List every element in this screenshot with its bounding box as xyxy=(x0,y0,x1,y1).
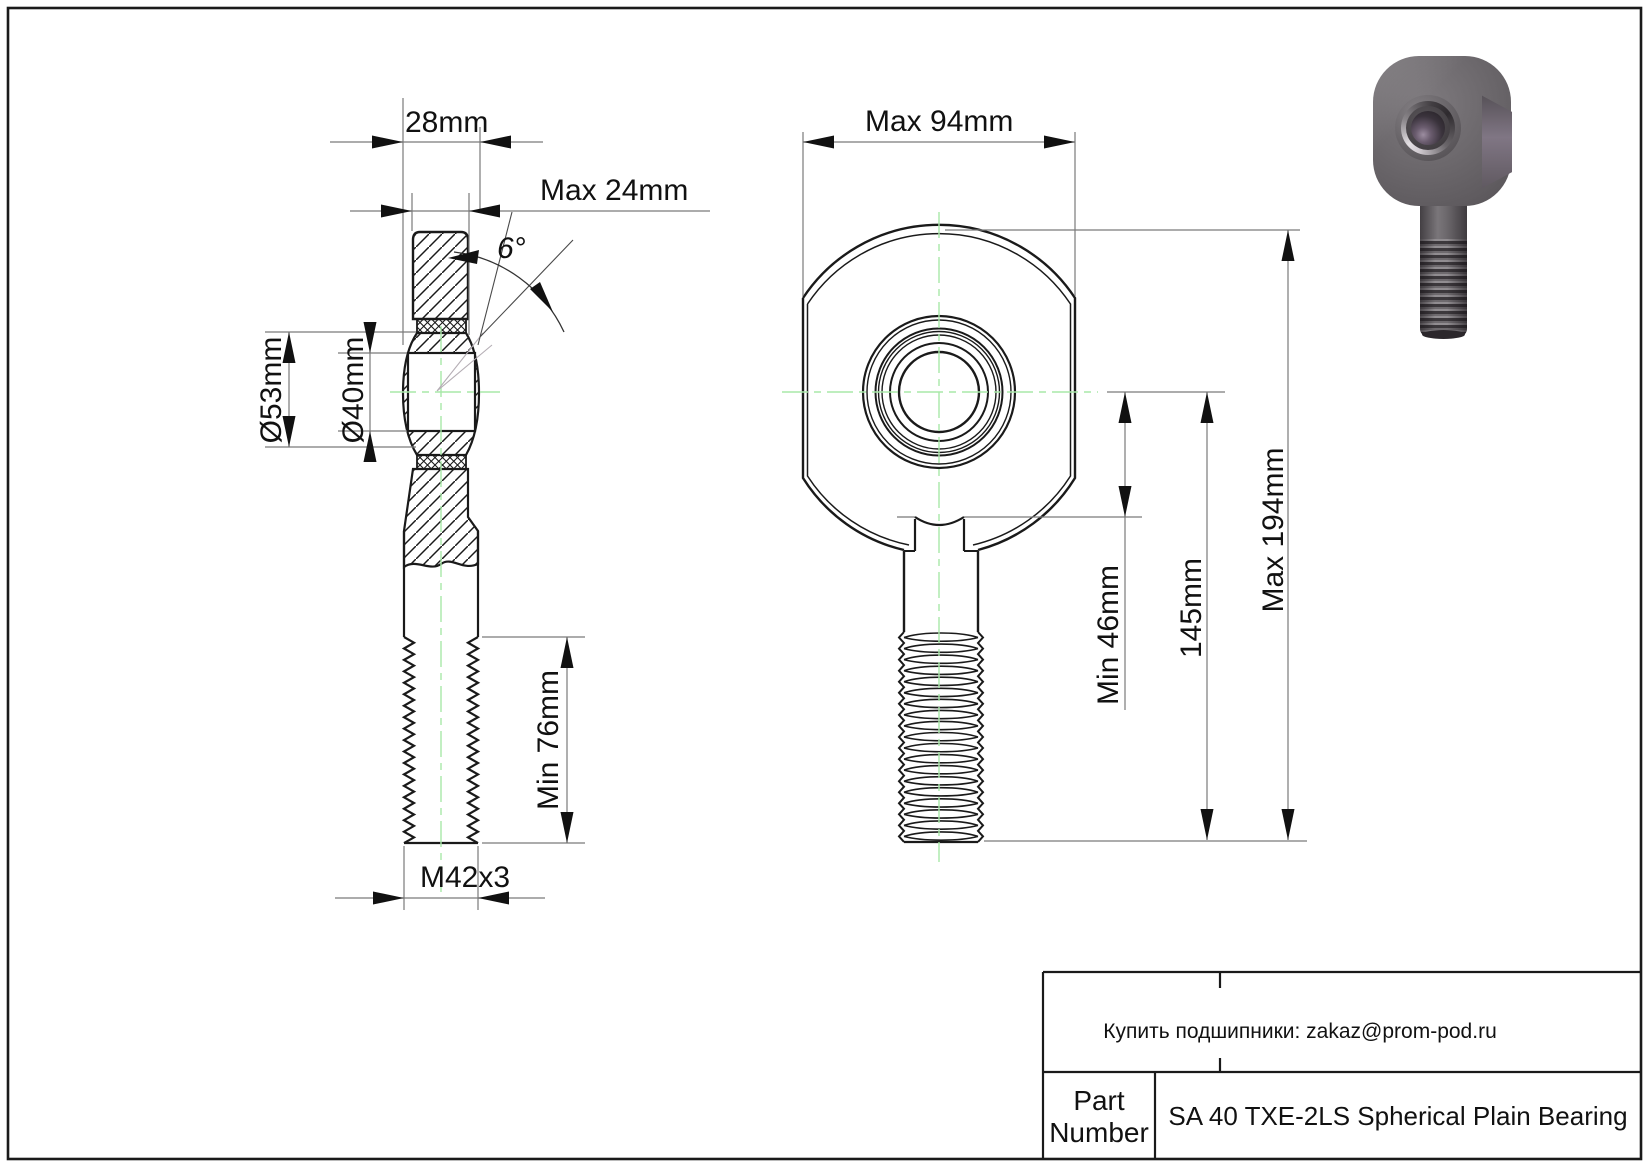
dim-shank-min-length: Min 46mm xyxy=(1092,565,1125,705)
dim-outer-diameter: Ø53mm xyxy=(255,337,288,444)
render-bore xyxy=(1411,111,1445,145)
contact-email-text: Купить подшипники: zakaz@prom-pod.ru xyxy=(1103,1020,1497,1043)
bearing-3d-render xyxy=(1330,40,1560,352)
front-shank-sides xyxy=(904,551,978,632)
dim-thread-min-length: Min 76mm xyxy=(532,670,565,810)
part-label-line1: Part xyxy=(1073,1085,1125,1116)
title-block: Купить подшипники: zakaz@prom-pod.ru Par… xyxy=(1043,972,1641,1159)
drawing-sheet: 28mm Max 24mm 6° Ø53mm Ø40mm Min 76mm M4… xyxy=(0,0,1649,1167)
part-number-text: SA 40 TXE-2LS Spherical Plain Bearing xyxy=(1168,1101,1627,1131)
render-stud-end xyxy=(1422,330,1465,339)
dim-front-head-width: Max 94mm xyxy=(865,105,1013,138)
front-dim-lines xyxy=(803,132,1307,841)
housing-upper-section xyxy=(413,232,468,319)
part-label-line2: Number xyxy=(1049,1117,1149,1148)
angle-arrow-right xyxy=(530,282,553,312)
front-dim-arrows xyxy=(803,136,1295,841)
dim-total-length: Max 194mm xyxy=(1257,447,1290,612)
side-section-view: 28mm Max 24mm 6° Ø53mm Ø40mm Min 76mm M4… xyxy=(255,98,710,910)
dim-head-width: Max 24mm xyxy=(540,174,688,207)
side-dim-lines xyxy=(265,98,710,910)
dim-bore-diameter: Ø40mm xyxy=(337,337,370,444)
dim-thread-spec: M42x3 xyxy=(420,861,510,894)
threaded-shank-front xyxy=(899,632,983,842)
dim-center-to-end: 145mm xyxy=(1175,558,1208,658)
dim-misalignment-angle: 6° xyxy=(497,232,526,265)
front-view: Max 94mm Min 46mm 145mm Max 194mm xyxy=(782,105,1307,862)
render-thread-stud xyxy=(1420,239,1467,336)
dim-ball-width: 28mm xyxy=(405,106,488,139)
